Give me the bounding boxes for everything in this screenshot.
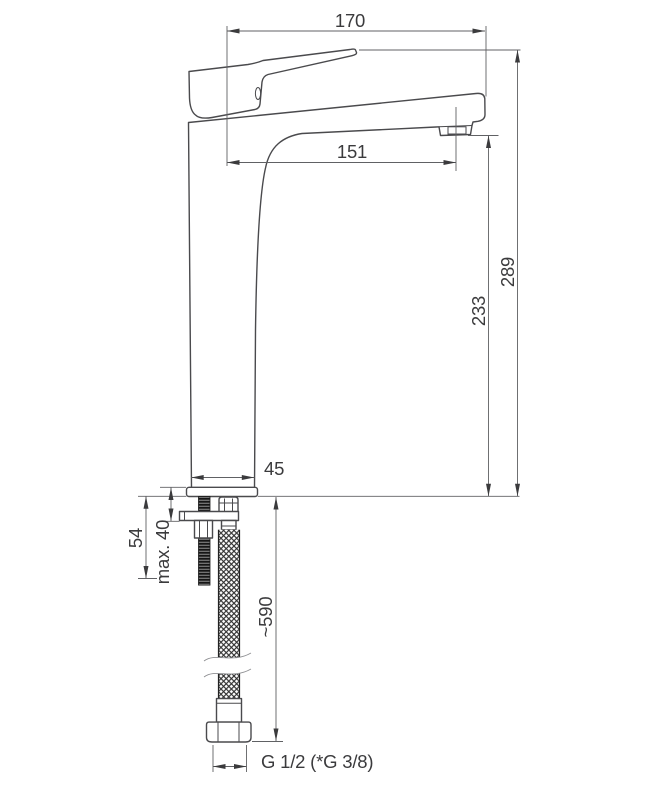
threaded-stud xyxy=(199,497,211,585)
hose-connector-nut xyxy=(219,497,238,513)
base-plate xyxy=(187,487,258,496)
dimension-label-max-mounting-thickness: max. 40 xyxy=(152,520,173,584)
dimension-hose-length: ~590 xyxy=(252,497,283,742)
dimension-label-body-diameter: 45 xyxy=(264,458,284,479)
dimension-label-stud-length: 54 xyxy=(125,528,146,548)
mounting-nut xyxy=(195,521,213,539)
dimension-label-spout-height: 233 xyxy=(468,296,489,326)
dimension-spout-height: 233 xyxy=(468,136,499,497)
hose-end-nut xyxy=(207,722,252,742)
hose-collar xyxy=(222,521,237,531)
dimension-label-overall-width: 170 xyxy=(335,10,365,31)
dimension-label-thread-size: G 1/2 (*G 3/8) xyxy=(261,751,373,772)
hose-ferrule xyxy=(217,699,242,723)
technical-drawing-page: 170 151 289 233 45 54 max. xyxy=(0,0,647,800)
dimension-label-spout-reach: 151 xyxy=(337,141,367,162)
dimension-label-overall-height: 289 xyxy=(497,257,518,287)
dimension-thread-size: G 1/2 (*G 3/8) xyxy=(213,745,373,772)
mounting-washer xyxy=(180,512,239,521)
dimension-label-hose-length: ~590 xyxy=(255,597,276,638)
supply-hose-group xyxy=(204,521,251,743)
dimension-max-mounting-thickness: max. 40 xyxy=(152,487,186,584)
technical-drawing-canvas: 170 151 289 233 45 54 max. xyxy=(0,0,647,800)
